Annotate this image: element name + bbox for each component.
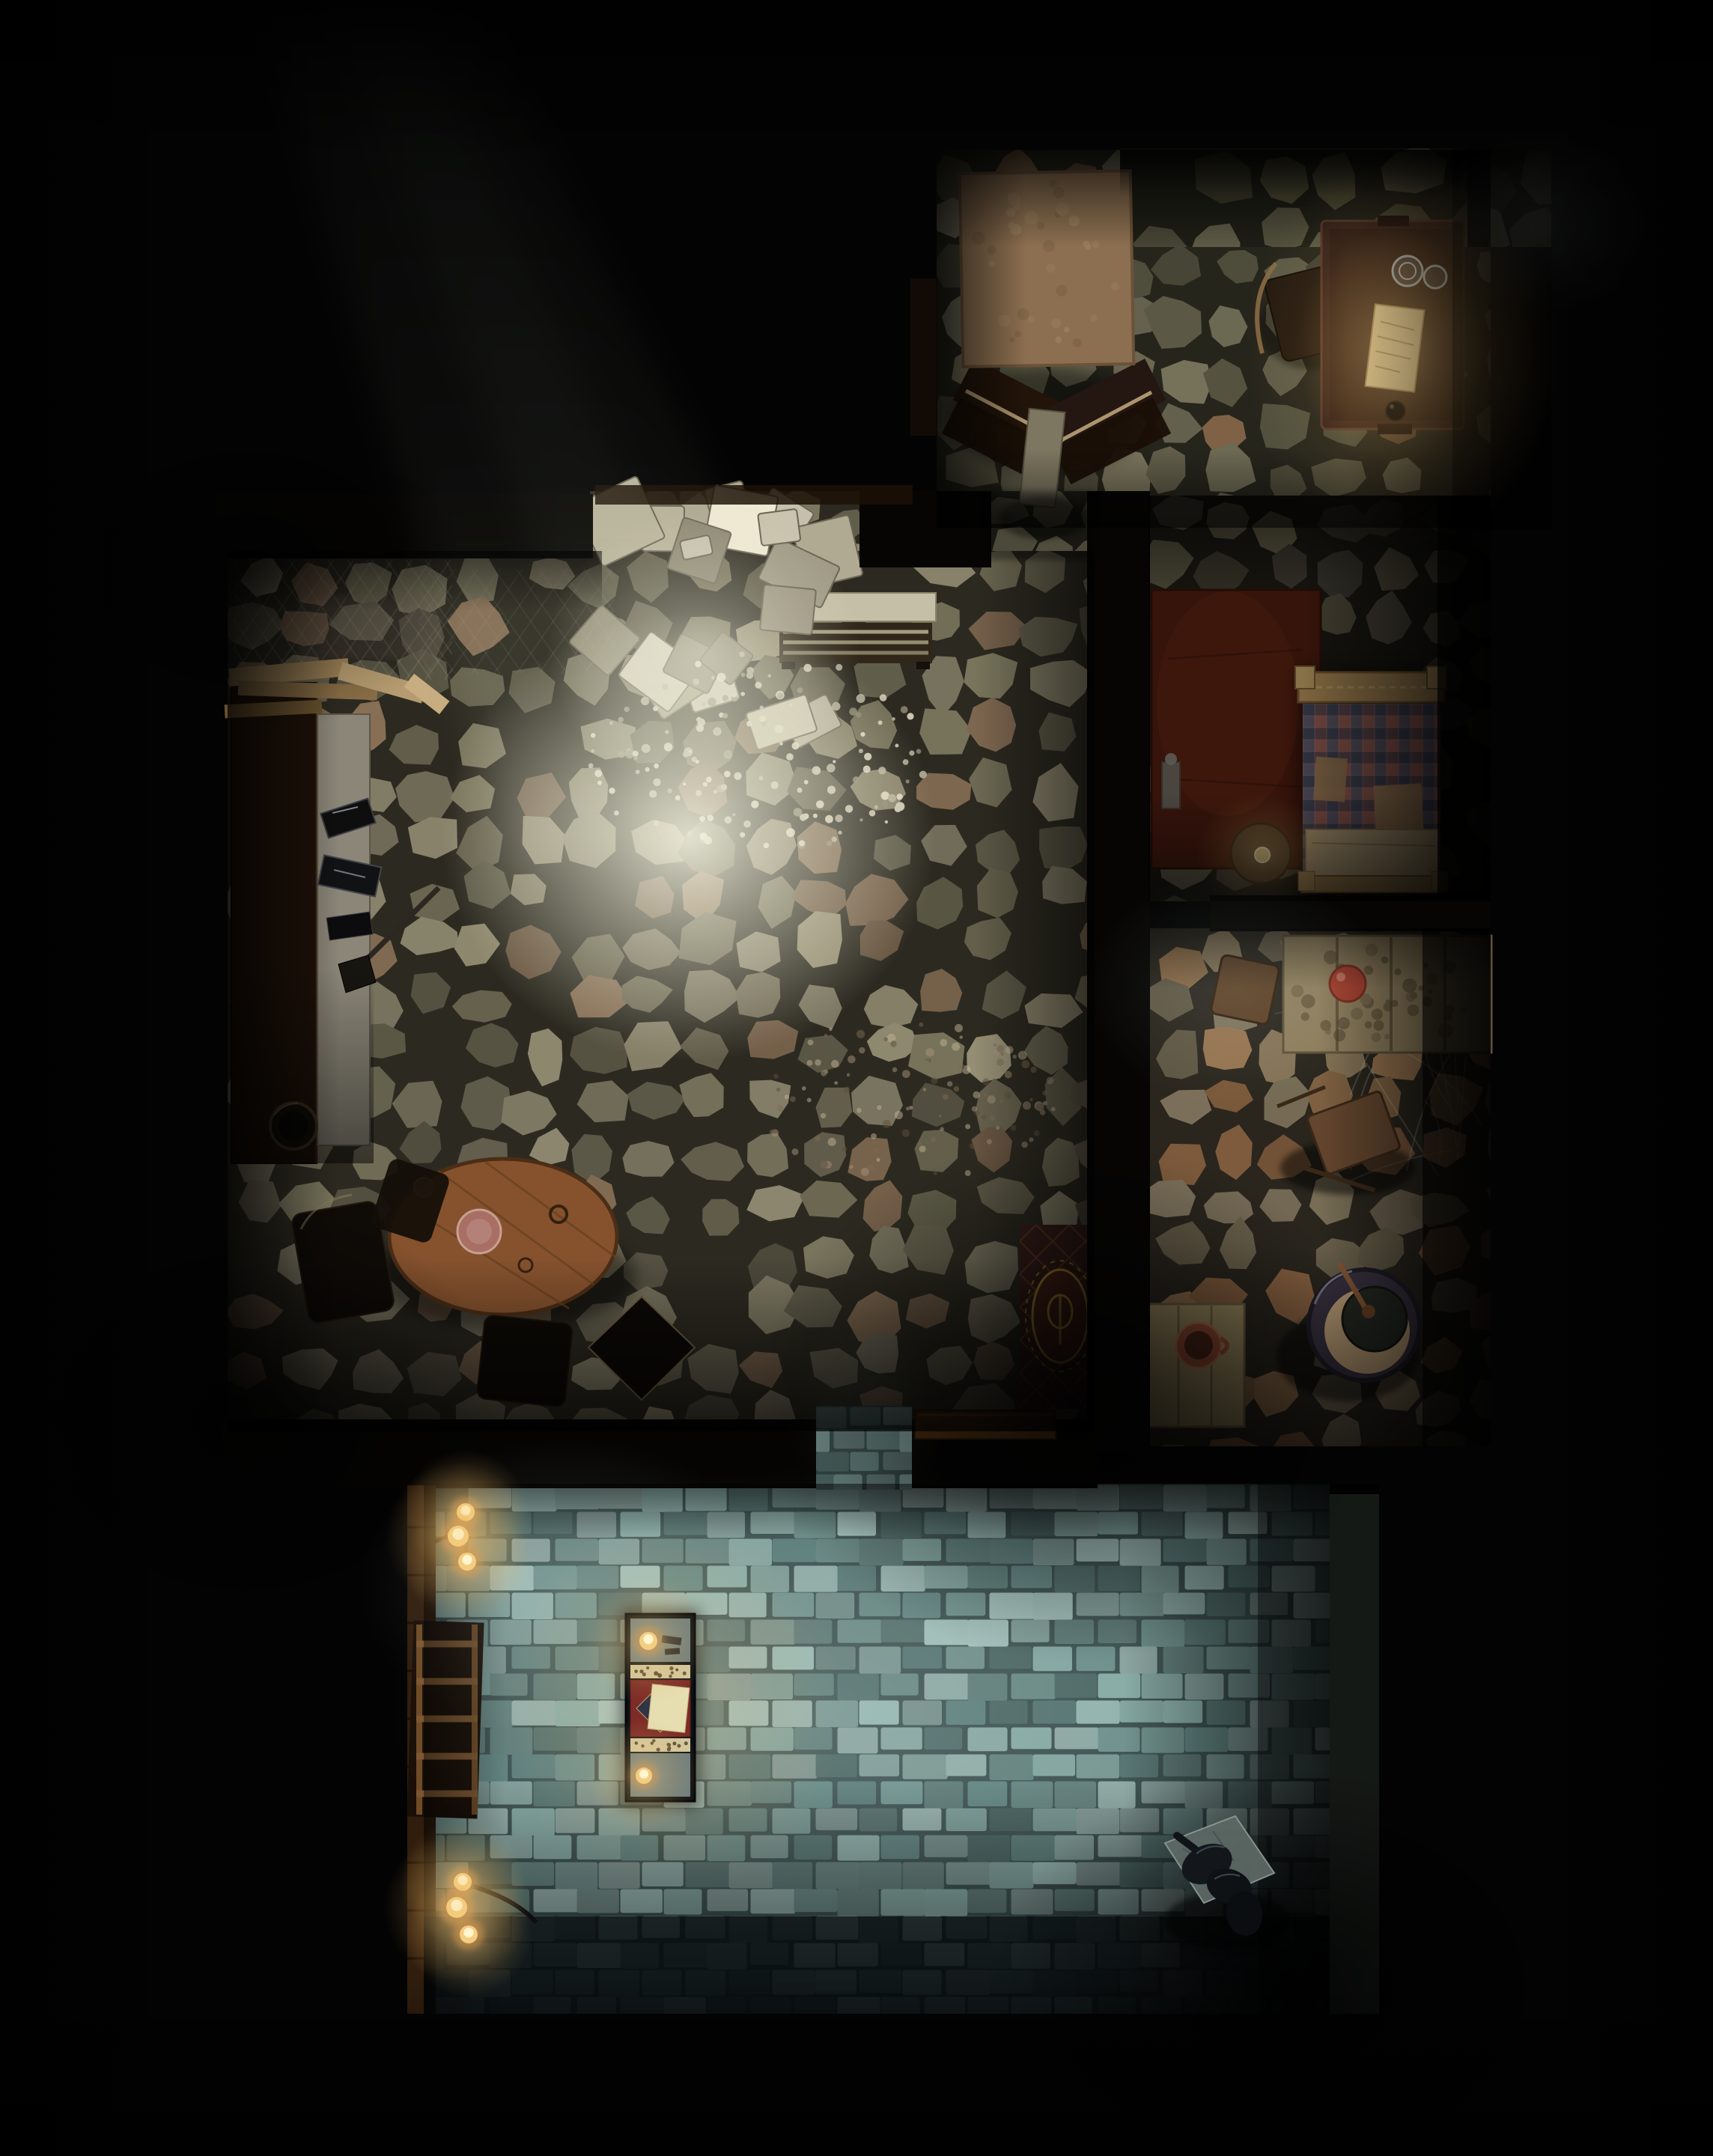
altar-candle-bottom xyxy=(586,1718,702,1833)
battle-map xyxy=(0,0,1713,2156)
battle-map-stage xyxy=(0,0,1713,2156)
vignette-bottom xyxy=(0,1976,1713,2156)
vignette-right xyxy=(1527,0,1713,2156)
bedroom-shade-top xyxy=(1148,496,1491,585)
bench-leg xyxy=(916,662,930,669)
storeroom-cool-light xyxy=(1086,868,1385,1108)
vignette-top xyxy=(0,0,1713,165)
wall-candle xyxy=(404,1499,530,1624)
vignette-left xyxy=(0,0,195,2156)
serving-bowl-inner xyxy=(466,1219,492,1244)
study-left-beam xyxy=(910,278,937,436)
doorway-shadow xyxy=(987,491,1095,560)
altar-candle-top xyxy=(585,1578,711,1704)
cellar-shade-top xyxy=(424,1484,1330,1536)
